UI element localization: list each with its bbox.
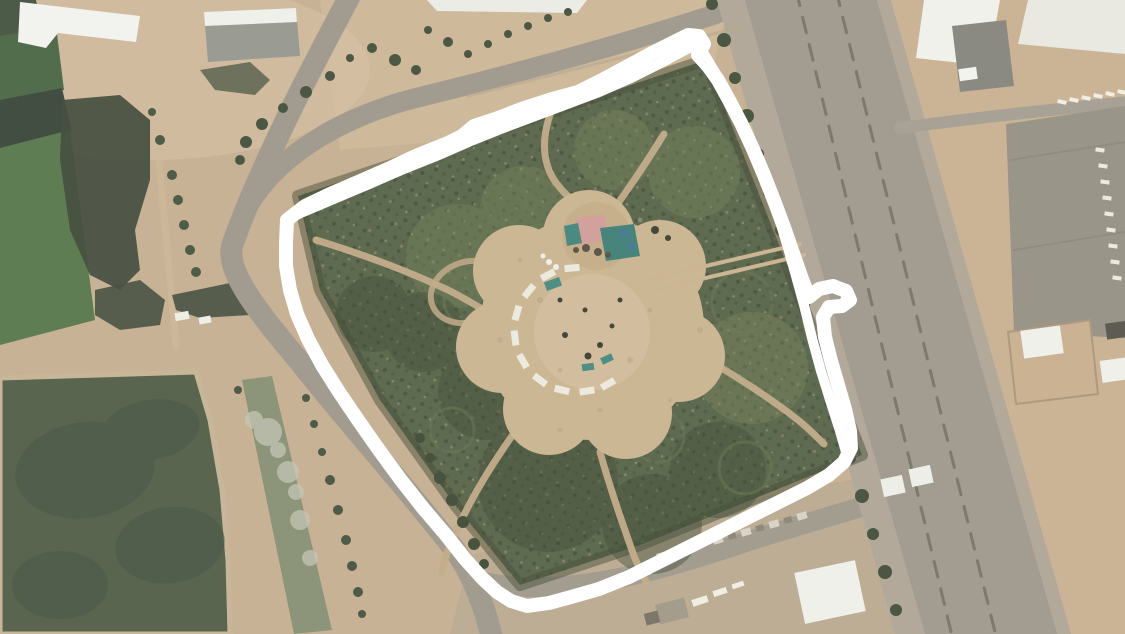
- building-dark-a: [952, 20, 1014, 92]
- top-white-strip: [427, 0, 587, 13]
- aerial-photo-canvas[interactable]: [0, 0, 1125, 634]
- building-dark-a-roofbit: [958, 67, 977, 81]
- plaza-inner-circle: [534, 274, 650, 390]
- parking-lot: [1006, 106, 1125, 338]
- scene-layers: [0, 0, 1125, 634]
- screenshot-root: [0, 0, 1125, 634]
